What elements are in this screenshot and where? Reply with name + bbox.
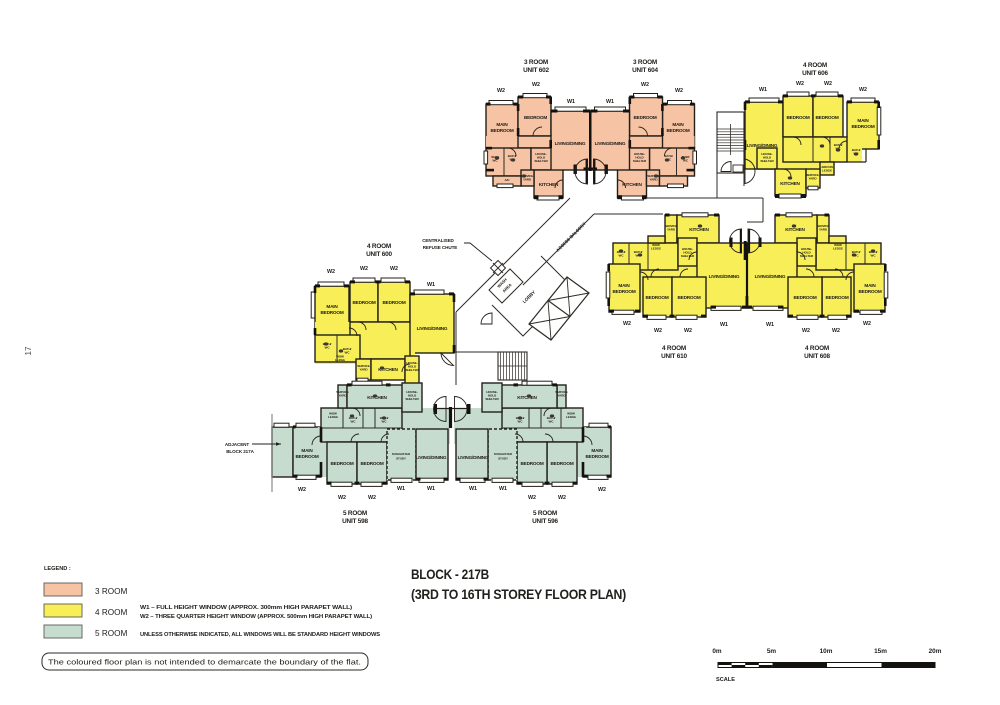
svg-text:YARD: YARD bbox=[558, 394, 567, 398]
svg-text:UNIT 606: UNIT 606 bbox=[802, 70, 828, 77]
svg-text:LIVING/DINING: LIVING/DINING bbox=[458, 455, 489, 460]
svg-text:5 ROOM: 5 ROOM bbox=[95, 629, 127, 638]
svg-text:4 ROOM: 4 ROOM bbox=[95, 608, 127, 617]
svg-text:5m: 5m bbox=[767, 648, 777, 655]
svg-text:BEDROOM: BEDROOM bbox=[352, 300, 375, 305]
svg-text:W2: W2 bbox=[368, 495, 376, 501]
svg-text:REFUSE CHUTE: REFUSE CHUTE bbox=[423, 245, 458, 250]
svg-text:4 ROOM: 4 ROOM bbox=[803, 62, 827, 69]
svg-text:BEDROOM: BEDROOM bbox=[382, 300, 405, 305]
svg-text:MAIN: MAIN bbox=[864, 283, 876, 288]
svg-text:CENTRALISED: CENTRALISED bbox=[422, 238, 454, 243]
svg-text:BEDROOM: BEDROOM bbox=[645, 295, 668, 300]
svg-text:4 ROOM: 4 ROOM bbox=[367, 243, 391, 250]
svg-text:BEDROOM: BEDROOM bbox=[585, 454, 608, 459]
svg-text:MAIN: MAIN bbox=[326, 304, 338, 309]
svg-text:5 ROOM: 5 ROOM bbox=[343, 510, 367, 517]
svg-text:KITCHEN: KITCHEN bbox=[367, 395, 387, 400]
svg-text:W2: W2 bbox=[675, 88, 683, 94]
svg-text:KITCHEN: KITCHEN bbox=[689, 227, 709, 232]
svg-text:W2 – THREE QUARTER HEIGHT WI: W2 – THREE QUARTER HEIGHT WINDOW (APPROX… bbox=[140, 614, 372, 620]
svg-text:YARD: YARD bbox=[667, 228, 676, 232]
svg-text:BEDROOM: BEDROOM bbox=[851, 124, 874, 129]
svg-text:W2: W2 bbox=[532, 82, 540, 88]
svg-text:W1 – FULL HEIGHT WINDOW (APP: W1 – FULL HEIGHT WINDOW (APPROX. 300mm H… bbox=[140, 605, 352, 611]
svg-text:5 ROOM: 5 ROOM bbox=[533, 510, 557, 517]
svg-text:LIVING/DINING: LIVING/DINING bbox=[417, 326, 448, 331]
svg-text:BEDROOM: BEDROOM bbox=[360, 461, 383, 466]
svg-text:W1: W1 bbox=[720, 322, 728, 328]
svg-text:MAIN: MAIN bbox=[857, 118, 869, 123]
svg-text:LEDGE: LEDGE bbox=[566, 415, 576, 419]
svg-text:MAIN: MAIN bbox=[672, 122, 684, 127]
svg-text:UNIT 598: UNIT 598 bbox=[342, 518, 368, 525]
svg-text:10m: 10m bbox=[820, 648, 833, 655]
svg-text:W2: W2 bbox=[360, 266, 368, 272]
svg-text:UNIT 608: UNIT 608 bbox=[804, 353, 830, 360]
svg-text:MAIN: MAIN bbox=[591, 448, 603, 453]
svg-text:BEDROOM: BEDROOM bbox=[550, 461, 573, 466]
svg-text:W2: W2 bbox=[298, 487, 306, 493]
svg-text:BEDROOM: BEDROOM bbox=[612, 289, 635, 294]
svg-text:W2: W2 bbox=[641, 82, 649, 88]
svg-text:BEDROOM: BEDROOM bbox=[524, 115, 547, 120]
svg-text:0m: 0m bbox=[712, 648, 722, 655]
svg-text:17: 17 bbox=[24, 346, 33, 355]
svg-text:SUGGESTED: SUGGESTED bbox=[494, 452, 513, 456]
svg-text:W1: W1 bbox=[766, 322, 774, 328]
svg-text:BLOCK - 217B: BLOCK - 217B bbox=[411, 566, 489, 582]
svg-text:W2: W2 bbox=[327, 269, 335, 275]
svg-text:UNIT 610: UNIT 610 bbox=[661, 353, 687, 360]
svg-text:YARD: YARD bbox=[360, 368, 369, 372]
svg-text:LEGEND :: LEGEND : bbox=[44, 566, 71, 572]
svg-text:SHELTER: SHELTER bbox=[760, 159, 774, 163]
svg-text:MAIN: MAIN bbox=[301, 448, 313, 453]
svg-text:UNIT 600: UNIT 600 bbox=[366, 251, 392, 258]
svg-text:SUGGESTED: SUGGESTED bbox=[392, 452, 411, 456]
svg-text:KITCHEN: KITCHEN bbox=[780, 181, 800, 186]
svg-text:BEDROOM: BEDROOM bbox=[825, 295, 848, 300]
svg-text:LIVING/DINING: LIVING/DINING bbox=[755, 274, 786, 279]
svg-text:W1: W1 bbox=[567, 99, 575, 105]
svg-text:SHELTER: SHELTER bbox=[485, 397, 499, 401]
svg-text:BEDROOM: BEDROOM bbox=[666, 128, 689, 133]
svg-text:4 ROOM: 4 ROOM bbox=[662, 345, 686, 352]
svg-text:W2: W2 bbox=[623, 321, 631, 327]
svg-text:KITCHEN: KITCHEN bbox=[539, 182, 559, 187]
svg-text:W2: W2 bbox=[598, 487, 606, 493]
svg-text:SCALE: SCALE bbox=[716, 677, 735, 683]
svg-text:LIVING/DINING: LIVING/DINING bbox=[416, 455, 447, 460]
svg-text:W1: W1 bbox=[397, 486, 405, 492]
svg-text:BEDROOM: BEDROOM bbox=[786, 115, 809, 120]
svg-text:LIVING/DINING: LIVING/DINING bbox=[709, 274, 740, 279]
svg-text:UNIT 604: UNIT 604 bbox=[632, 67, 658, 74]
svg-text:W2: W2 bbox=[824, 81, 832, 87]
svg-text:SHELTER: SHELTER bbox=[681, 254, 695, 258]
svg-text:MAIN: MAIN bbox=[618, 283, 630, 288]
svg-text:W1: W1 bbox=[759, 87, 767, 93]
svg-text:W2: W2 bbox=[796, 81, 804, 87]
svg-text:20m: 20m bbox=[929, 648, 942, 655]
svg-text:W2: W2 bbox=[684, 328, 692, 334]
svg-text:STUDY: STUDY bbox=[396, 457, 406, 461]
svg-text:UNLESS OTHERWISE INDICATED, AL: UNLESS OTHERWISE INDICATED, ALL WINDOWS … bbox=[140, 632, 381, 638]
svg-text:3 ROOM: 3 ROOM bbox=[95, 587, 127, 596]
svg-text:W2: W2 bbox=[497, 88, 505, 94]
svg-text:W2: W2 bbox=[859, 87, 867, 93]
svg-text:BEDROOM: BEDROOM bbox=[633, 115, 656, 120]
svg-text:SHELTER: SHELTER bbox=[633, 159, 647, 163]
svg-text:(3RD TO 16TH STOREY FLOOR PLAN: (3RD TO 16TH STOREY FLOOR PLAN) bbox=[411, 586, 626, 602]
svg-text:ADJACENT: ADJACENT bbox=[225, 442, 250, 447]
svg-text:KITCHEN: KITCHEN bbox=[622, 182, 642, 187]
svg-text:YARD: YARD bbox=[523, 178, 532, 182]
svg-text:BEDROOM: BEDROOM bbox=[320, 310, 343, 315]
svg-text:SHELTER: SHELTER bbox=[534, 159, 548, 163]
svg-text:W1: W1 bbox=[469, 486, 477, 492]
svg-text:LEDGE: LEDGE bbox=[833, 247, 843, 251]
svg-text:W2: W2 bbox=[802, 328, 810, 334]
svg-text:W1: W1 bbox=[499, 486, 507, 492]
svg-text:LEDGE: LEDGE bbox=[822, 169, 832, 173]
svg-text:The coloured floor plan is not: The coloured floor plan is not intended … bbox=[48, 658, 361, 667]
svg-text:STUDY: STUDY bbox=[498, 457, 508, 461]
svg-text:3 ROOM: 3 ROOM bbox=[524, 59, 548, 66]
svg-text:YARD: YARD bbox=[339, 394, 348, 398]
svg-text:W1: W1 bbox=[427, 486, 435, 492]
svg-text:W2: W2 bbox=[832, 328, 840, 334]
svg-text:LIVING/DINING: LIVING/DINING bbox=[595, 141, 626, 146]
svg-text:YARD: YARD bbox=[650, 178, 659, 182]
svg-text:KITCHEN: KITCHEN bbox=[785, 227, 805, 232]
svg-text:W2: W2 bbox=[558, 495, 566, 501]
svg-text:W1: W1 bbox=[427, 282, 435, 288]
svg-text:3 ROOM: 3 ROOM bbox=[633, 59, 657, 66]
svg-text:LIVING/DINING: LIVING/DINING bbox=[747, 143, 778, 148]
svg-text:YARD: YARD bbox=[809, 177, 818, 181]
svg-text:BEDROOM: BEDROOM bbox=[793, 295, 816, 300]
svg-text:UNIT 602: UNIT 602 bbox=[523, 67, 549, 74]
svg-text:SHELTER: SHELTER bbox=[800, 254, 814, 258]
svg-text:BEDROOM: BEDROOM bbox=[677, 295, 700, 300]
svg-text:YARD: YARD bbox=[819, 228, 828, 232]
svg-text:SHELTER: SHELTER bbox=[405, 368, 419, 372]
svg-text:UNIT 596: UNIT 596 bbox=[532, 518, 558, 525]
svg-text:BEDROOM: BEDROOM bbox=[295, 454, 318, 459]
svg-text:LIVING/DINING: LIVING/DINING bbox=[555, 141, 586, 146]
svg-text:BEDROOM: BEDROOM bbox=[815, 115, 838, 120]
svg-text:W2: W2 bbox=[528, 495, 536, 501]
svg-text:MAIN: MAIN bbox=[496, 122, 508, 127]
svg-text:W2: W2 bbox=[338, 495, 346, 501]
svg-text:SHELTER: SHELTER bbox=[405, 397, 419, 401]
svg-text:W1: W1 bbox=[606, 99, 614, 105]
svg-text:W2: W2 bbox=[654, 328, 662, 334]
svg-text:BEDROOM: BEDROOM bbox=[330, 461, 353, 466]
svg-text:W2: W2 bbox=[863, 321, 871, 327]
svg-text:BEDROOM: BEDROOM bbox=[858, 289, 881, 294]
svg-text:15m: 15m bbox=[874, 648, 887, 655]
svg-text:W2: W2 bbox=[390, 266, 398, 272]
svg-text:LEDGE: LEDGE bbox=[335, 358, 345, 362]
svg-text:BEDROOM: BEDROOM bbox=[520, 461, 543, 466]
svg-text:LEDGE: LEDGE bbox=[651, 247, 661, 251]
svg-text:BEDROOM: BEDROOM bbox=[490, 128, 513, 133]
svg-text:LEDGE: LEDGE bbox=[328, 415, 338, 419]
svg-text:4 ROOM: 4 ROOM bbox=[805, 345, 829, 352]
svg-text:BLOCK 217A: BLOCK 217A bbox=[226, 449, 254, 454]
